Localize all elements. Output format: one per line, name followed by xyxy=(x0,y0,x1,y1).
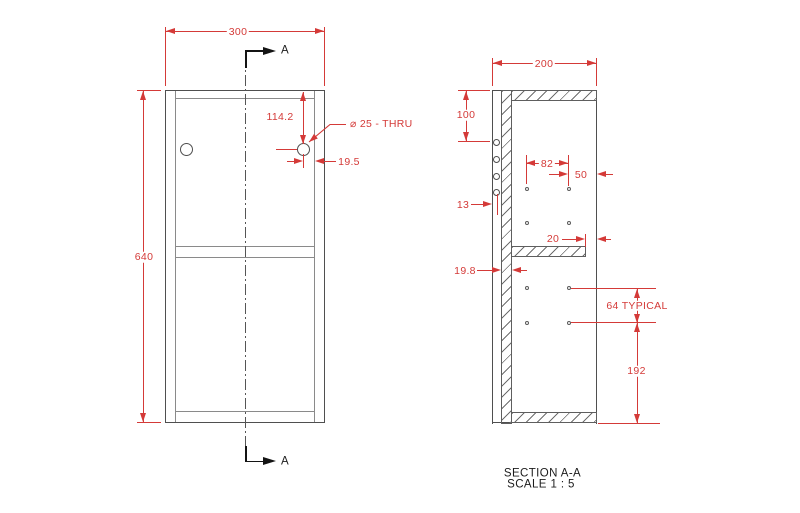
dim-arrow-icon xyxy=(512,267,521,273)
shelf-pin-hole xyxy=(567,321,571,325)
dim-arrow-icon xyxy=(576,236,585,242)
dim-arrow-icon xyxy=(526,160,535,166)
dim-13-label: 13 xyxy=(455,199,471,210)
back-panel-hole xyxy=(493,139,500,146)
dim-640-label: 640 xyxy=(133,252,155,263)
dim-arrow-icon xyxy=(166,28,175,34)
shelf-pin-hole xyxy=(567,187,571,191)
dim-195-tail-right xyxy=(324,161,336,162)
shelf-pin-hole xyxy=(567,221,571,225)
shelf-pin-hole xyxy=(567,286,571,290)
dim-300-label: 300 xyxy=(227,27,249,38)
back-panel-hole xyxy=(493,156,500,163)
section-top-panel-hatch xyxy=(511,90,597,101)
dim-64-label: 64 TYPICAL xyxy=(604,300,669,311)
dim-20-ext xyxy=(585,234,586,247)
dim-arrow-icon xyxy=(492,267,501,273)
dim-192-ext-bottom xyxy=(598,423,660,424)
dim-200-label: 200 xyxy=(533,58,555,69)
front-hole-left xyxy=(180,143,193,156)
dim-640-ext-bottom xyxy=(137,422,161,423)
shelf-pin-hole xyxy=(525,187,529,191)
dim-arrow-icon xyxy=(559,171,568,177)
dim-114-ext xyxy=(276,149,297,150)
dim-arrow-icon xyxy=(463,132,469,141)
section-letter-top: A xyxy=(281,45,289,57)
dim-arrow-icon xyxy=(493,60,502,66)
dim-arrow-icon xyxy=(587,60,596,66)
shelf-pin-hole xyxy=(525,286,529,290)
dim-arrow-icon xyxy=(294,158,303,164)
section-letter-bottom: A xyxy=(281,456,289,468)
dim-64-ext-top xyxy=(571,288,656,289)
cad-drawing-canvas: A A 300 640 114.2 19.5 ⌀ 25 - THRU xyxy=(0,0,800,513)
shelf-pin-hole xyxy=(525,321,529,325)
centerline xyxy=(245,56,246,456)
dim-64-ext-bottom xyxy=(571,322,656,323)
dim-arrow-icon xyxy=(483,201,492,207)
dim-arrow-icon xyxy=(597,171,606,177)
section-shelf-hatch xyxy=(511,246,586,257)
dim-195-label: 19.5 xyxy=(336,156,362,167)
section-cut-line-bottom-h xyxy=(245,461,264,463)
section-right-edge xyxy=(596,90,597,424)
dim-arrow-icon xyxy=(597,236,606,242)
section-back-panel-hatch xyxy=(501,90,512,424)
dim-50-tail-right xyxy=(606,174,613,175)
dim-50-tail-left xyxy=(549,174,559,175)
dim-82-label: 82 xyxy=(539,158,555,169)
dim-100-ext-bottom xyxy=(458,141,490,142)
dim-arrow-icon xyxy=(140,413,146,422)
back-panel-hole xyxy=(493,173,500,180)
dim-arrow-icon xyxy=(315,158,324,164)
section-bottom-panel-hatch xyxy=(511,412,597,423)
dim-13-tick xyxy=(497,194,498,215)
dim-arrow-icon xyxy=(634,314,640,323)
dim-200-ext-right xyxy=(596,58,597,86)
dim-198-tail-left xyxy=(477,270,492,271)
dim-198-tail-right xyxy=(521,270,527,271)
dim-195-tick xyxy=(303,154,304,168)
section-cut-arrow-top-icon xyxy=(263,47,276,55)
section-scale: SCALE 1 : 5 xyxy=(507,479,575,491)
dim-20-tail-left xyxy=(562,239,576,240)
dim-195-tail-left xyxy=(287,161,294,162)
dim-50-label: 50 xyxy=(573,169,589,180)
section-cut-line-top-h xyxy=(245,50,264,52)
dim-13-tail xyxy=(471,204,483,205)
shelf-pin-hole xyxy=(525,221,529,225)
dim-arrow-icon xyxy=(300,92,306,101)
dim-192-label: 192 xyxy=(625,366,647,377)
dim-114-label: 114.2 xyxy=(265,112,296,123)
section-cut-line-top xyxy=(245,50,247,68)
dim-arrow-icon xyxy=(300,135,306,144)
dim-20-tail-right xyxy=(606,239,611,240)
dim-20-label: 20 xyxy=(545,233,561,244)
dim-82-ext-right xyxy=(568,155,569,186)
dim-arrow-icon xyxy=(315,28,324,34)
section-cut-arrow-bottom-icon xyxy=(263,457,276,465)
hole-callout-label: ⌀ 25 - THRU xyxy=(348,119,415,130)
dim-300-ext-right xyxy=(324,27,325,86)
dim-arrow-icon xyxy=(140,91,146,100)
dim-100-label: 100 xyxy=(455,110,477,121)
dim-arrow-icon xyxy=(559,160,568,166)
dim-300-ext-left xyxy=(165,27,166,86)
front-view-inner-right-edge xyxy=(314,91,315,422)
dim-arrow-icon xyxy=(634,289,640,298)
dim-arrow-icon xyxy=(463,91,469,100)
dim-arrow-icon xyxy=(634,323,640,332)
dim-198-label: 19.8 xyxy=(452,265,478,276)
hole-callout-leader xyxy=(0,0,800,513)
